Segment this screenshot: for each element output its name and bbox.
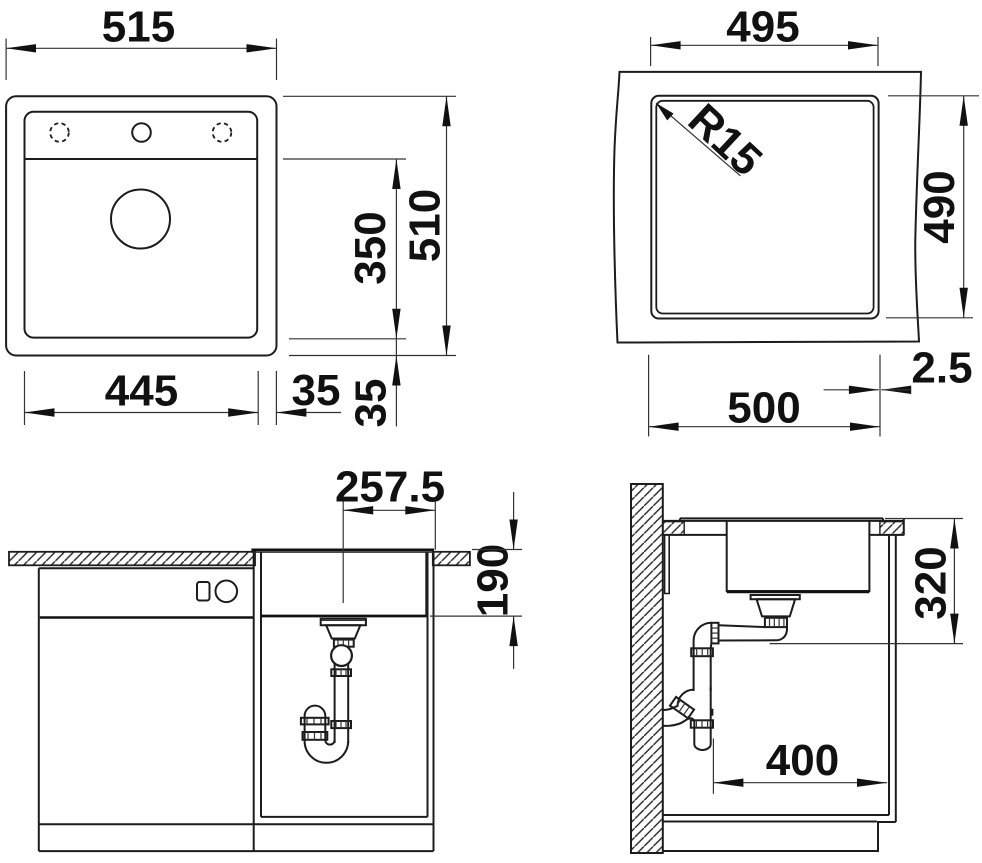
svg-text:257.5: 257.5 xyxy=(335,463,445,512)
svg-text:445: 445 xyxy=(105,367,178,416)
svg-text:190: 190 xyxy=(468,544,517,617)
svg-text:320: 320 xyxy=(907,546,956,619)
svg-text:510: 510 xyxy=(401,189,450,262)
svg-text:500: 500 xyxy=(727,384,800,433)
svg-text:35: 35 xyxy=(347,379,396,428)
svg-text:35: 35 xyxy=(292,366,341,415)
svg-text:2.5: 2.5 xyxy=(911,344,972,393)
svg-text:490: 490 xyxy=(915,170,964,243)
svg-text:350: 350 xyxy=(346,211,395,284)
svg-text:515: 515 xyxy=(102,3,175,52)
svg-text:400: 400 xyxy=(766,736,839,785)
svg-text:495: 495 xyxy=(726,3,799,52)
